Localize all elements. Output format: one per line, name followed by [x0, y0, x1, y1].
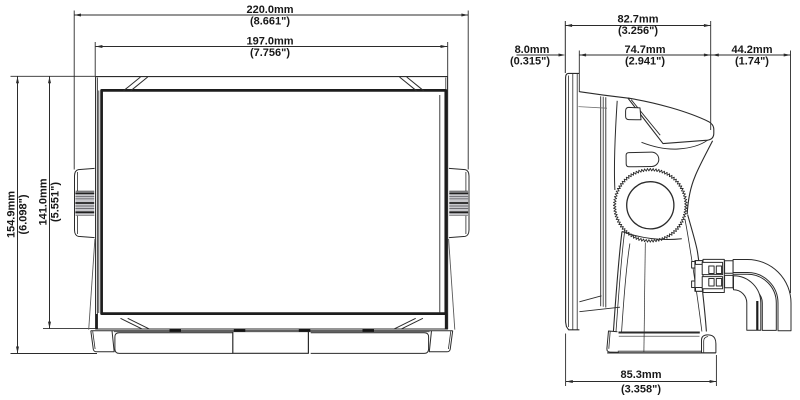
svg-text:8.0mm: 8.0mm	[515, 44, 550, 56]
svg-text:74.7mm: 74.7mm	[625, 44, 666, 56]
svg-text:141.0mm: 141.0mm	[38, 178, 50, 225]
svg-text:154.9mm: 154.9mm	[6, 191, 18, 238]
svg-text:82.7mm: 82.7mm	[618, 14, 659, 26]
svg-text:(0.315"): (0.315")	[510, 56, 550, 68]
svg-text:220.0mm: 220.0mm	[246, 4, 293, 16]
svg-text:197.0mm: 197.0mm	[246, 36, 293, 48]
svg-text:(5.551"): (5.551")	[50, 182, 62, 222]
svg-text:(7.756"): (7.756")	[250, 47, 290, 59]
svg-text:44.2mm: 44.2mm	[732, 44, 773, 56]
svg-text:(3.358"): (3.358")	[621, 384, 661, 396]
svg-text:(2.941"): (2.941")	[625, 56, 665, 68]
svg-text:(3.256"): (3.256")	[618, 25, 658, 37]
svg-text:(8.661"): (8.661")	[250, 16, 290, 28]
svg-text:(1.74"): (1.74")	[735, 56, 769, 68]
svg-text:(6.098"): (6.098")	[18, 194, 30, 234]
svg-text:85.3mm: 85.3mm	[621, 369, 662, 381]
